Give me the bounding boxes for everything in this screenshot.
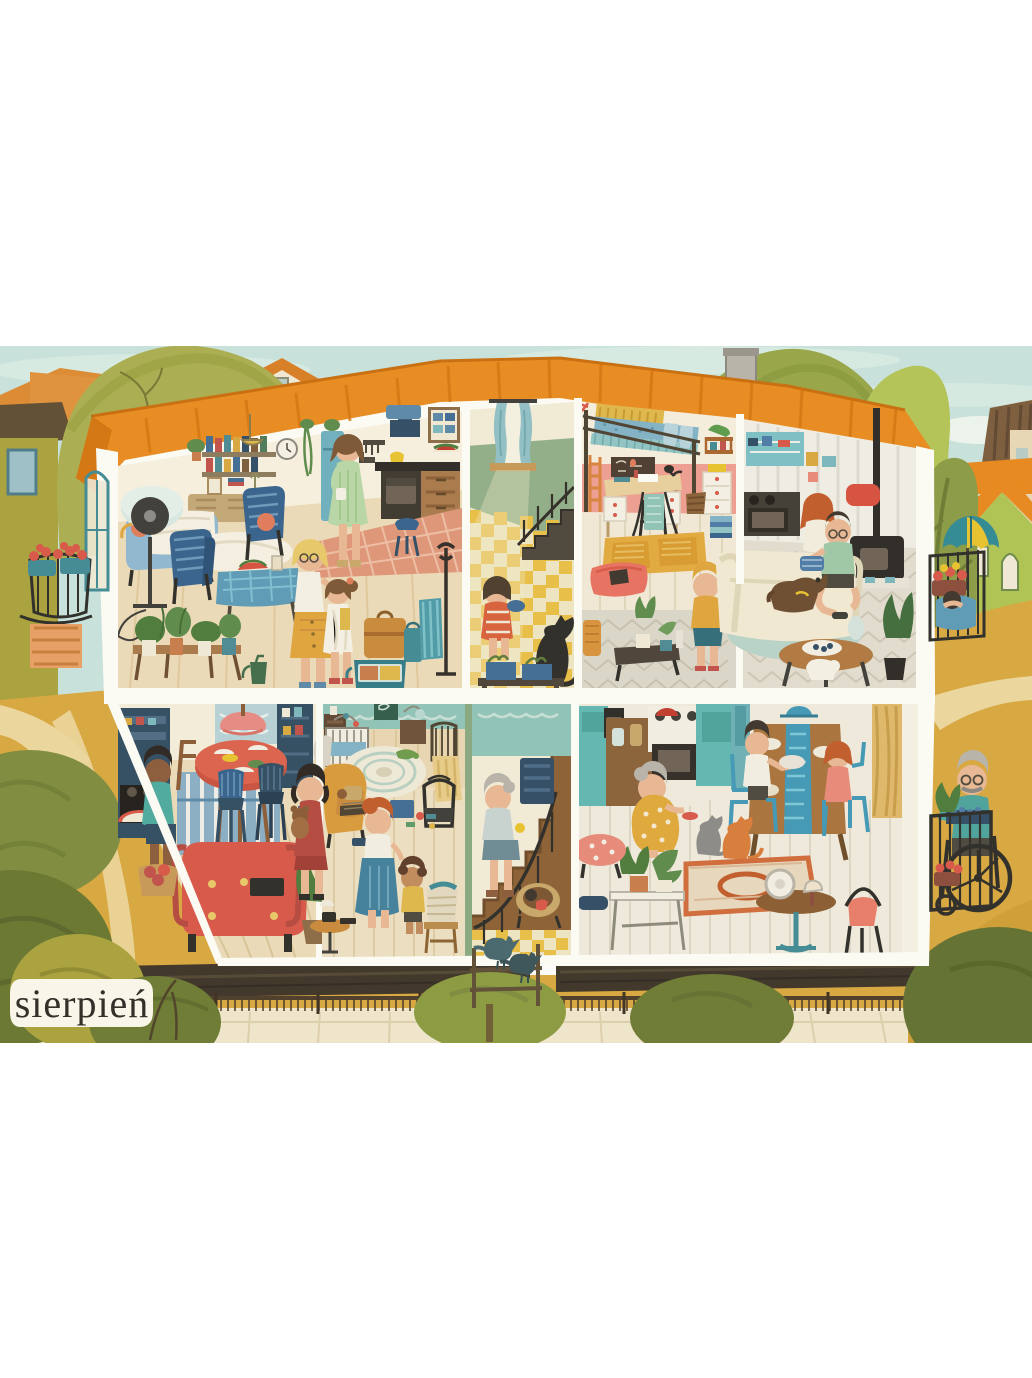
svg-text:sierpień: sierpień xyxy=(15,981,150,1026)
